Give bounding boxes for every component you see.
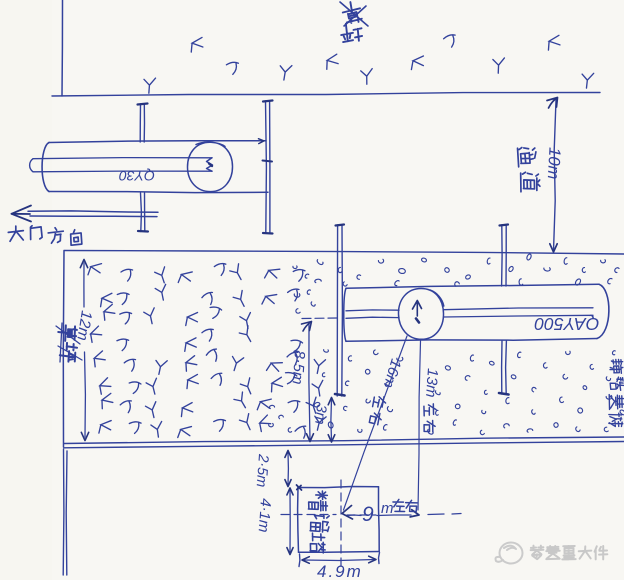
svg-text:QAY500: QAY500 — [534, 314, 599, 334]
svg-text:9: 9 — [362, 503, 374, 526]
svg-text:m: m — [381, 500, 394, 517]
svg-text:QY30: QY30 — [119, 168, 155, 184]
svg-text:3m: 3m — [311, 404, 329, 425]
svg-text:4·1m: 4·1m — [255, 498, 274, 533]
svg-text:4.9m: 4.9m — [317, 562, 363, 580]
svg-text:8·5m: 8·5m — [289, 350, 308, 385]
svg-text:13m: 13m — [422, 368, 441, 398]
svg-text:10m: 10m — [544, 147, 564, 180]
svg-text:2·5m: 2·5m — [253, 453, 271, 488]
